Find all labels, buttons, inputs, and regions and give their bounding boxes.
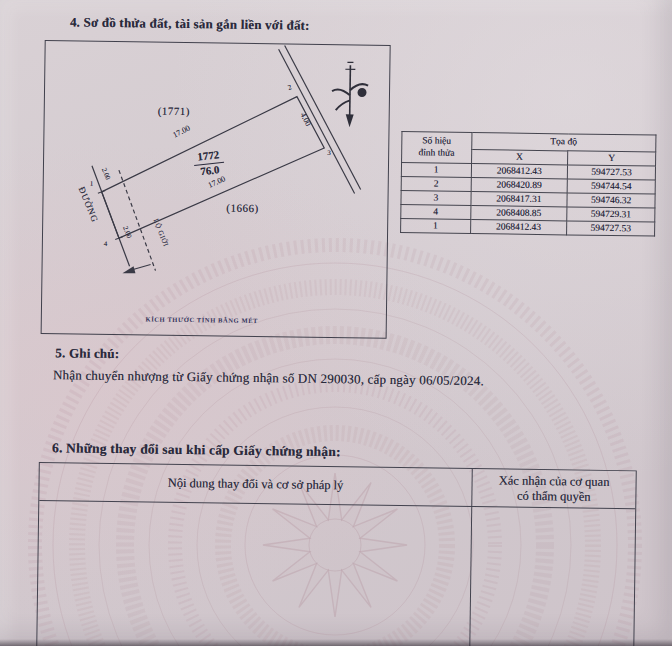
section4-title: 4. Sơ đồ thửa đất, tài sản gắn liền với … xyxy=(70,14,310,33)
y-cell: 594746.32 xyxy=(567,193,655,208)
coords-header-x: X xyxy=(471,150,568,165)
coords-row: 1 2068412.43 594727.53 xyxy=(401,219,655,237)
plot-sketch-drawing xyxy=(42,41,389,337)
changes-header-confirmation: Xác nhận của cơ quan có thẩm quyền xyxy=(471,469,636,508)
coordinates-table: Số hiệu đỉnh thửa Tọa độ X Y 1 2068412.4… xyxy=(400,131,656,237)
right-road-line-outer xyxy=(277,49,357,193)
changes-table: Nội dung thay đổi và cơ sở pháp lý Xác n… xyxy=(36,462,637,646)
section5-heading: 5. Ghi chú: xyxy=(55,345,119,362)
vertex-1-label: 1 xyxy=(90,180,94,188)
changes-body-confirmation-cell xyxy=(469,507,635,646)
vertex-cell: 1 xyxy=(401,163,471,178)
y-cell: 594744.54 xyxy=(567,179,655,194)
boundary-arrow-head xyxy=(122,266,135,273)
vertex-3-label: 3 xyxy=(327,149,331,157)
changes-body-row xyxy=(37,501,635,646)
vertex-cell: 4 xyxy=(401,205,471,220)
vertex-cell: 3 xyxy=(401,191,471,206)
parcel-area: 76.0 xyxy=(200,163,220,177)
compass-dot xyxy=(357,88,366,97)
vertex-4-label: 4 xyxy=(104,240,108,248)
plot-sketch-box: (1771) (1666) 1772 76.0 17.00 17.00 4.00… xyxy=(41,40,391,339)
x-cell: 2068417.31 xyxy=(471,192,568,207)
neighbor-plot-bottom-label: (1666) xyxy=(226,202,258,214)
coords-header-y: Y xyxy=(568,151,656,166)
parcel-number: 1772 xyxy=(193,148,224,166)
vertex-cell: 1 xyxy=(401,219,471,234)
y-cell: 594727.53 xyxy=(567,221,655,236)
vertex-cell: 2 xyxy=(401,177,471,192)
x-cell: 2068408.85 xyxy=(470,206,567,221)
coords-header-row-1: Số hiệu đỉnh thửa Tọa độ xyxy=(402,132,656,153)
section6-heading: 6. Những thay đổi sau khi cấp Giấy chứng… xyxy=(52,440,341,460)
y-cell: 594727.53 xyxy=(568,165,656,180)
x-cell: 2068412.43 xyxy=(470,220,567,235)
changes-body-content-cell xyxy=(37,501,471,646)
section5-note: Nhận chuyển nhượng từ Giấy chứng nhận số… xyxy=(53,367,623,391)
x-cell: 2068420.89 xyxy=(471,178,568,193)
neighbor-plot-top-label: (1771) xyxy=(158,105,190,117)
y-cell: 594729.31 xyxy=(567,207,655,222)
compass-arrowhead xyxy=(346,114,354,127)
photo-bottom-edge-shadow xyxy=(0,639,672,646)
coords-header-vertex: Số hiệu đỉnh thửa xyxy=(402,132,472,164)
changes-header-content: Nội dung thay đổi và cơ sở pháp lý xyxy=(39,463,471,506)
parcel-number-area: 1772 76.0 xyxy=(181,147,238,180)
x-cell: 2068412.43 xyxy=(471,164,568,179)
